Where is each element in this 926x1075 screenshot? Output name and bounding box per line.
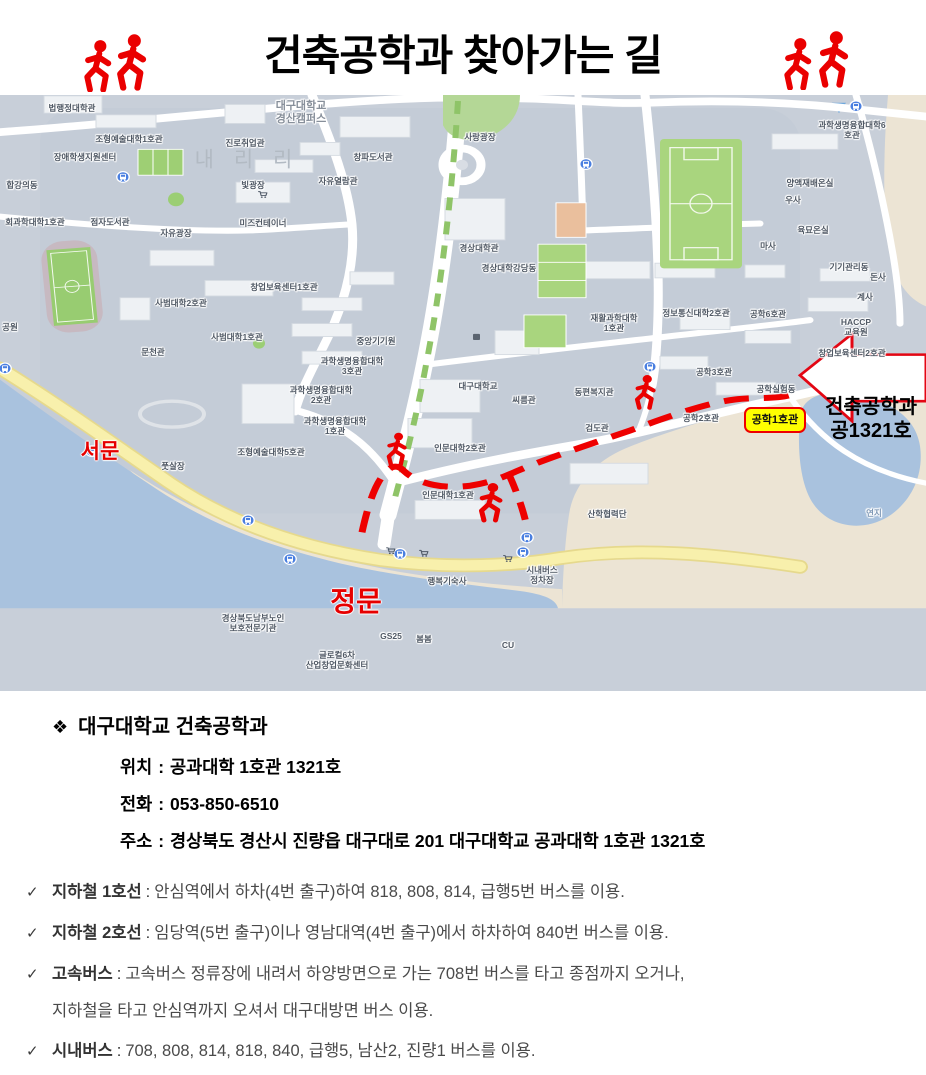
info-row-value: 053-850-6510 (170, 794, 279, 814)
colon-separator: : (142, 924, 155, 942)
check-icon: ✓ (26, 1040, 52, 1064)
transit-row-label: 지하철 1호선 (52, 883, 142, 901)
transit-row-label: 시내버스 (52, 1042, 113, 1060)
info-row-value: 공과대학 1호관 1321호 (170, 757, 341, 777)
main-gate-label: 정문 (330, 580, 382, 620)
check-icon: ✓ (26, 963, 52, 987)
check-icon: ✓ (26, 881, 52, 905)
bus-stop-icon (580, 159, 592, 170)
colon-separator: : (152, 757, 170, 777)
callout-text: 건축공학과 공1321호 (816, 395, 926, 443)
transit-row-text: 안심역에서 하차(4번 출구)하여 818, 808, 814, 급행5번 버스… (154, 883, 625, 901)
callout-line2: 공1321호 (816, 419, 926, 443)
colon-separator: : (113, 1042, 126, 1060)
check-icon: ✓ (26, 922, 52, 946)
map-base-graphic (0, 95, 926, 691)
info-row-label: 주소 (120, 831, 152, 851)
west-gate-label: 서문 (81, 435, 120, 465)
info-row: 전화:053-850-6510 (120, 786, 705, 823)
transit-row-text: 708, 808, 814, 818, 840, 급행5, 남산2, 진량1 버… (125, 1042, 535, 1060)
transit-row-continuation: 지하철을 타고 안심역까지 오셔서 대구대방면 버스 이용. (52, 999, 906, 1023)
transit-row: ✓시내버스:708, 808, 814, 818, 840, 급행5, 남산2,… (26, 1039, 906, 1064)
transit-row: ✓지하철 2호선:임당역(5번 출구)이나 영남대역(4번 출구)에서 하차하여… (26, 921, 906, 946)
bus-stop-icon (394, 549, 406, 560)
info-row-label: 위치 (120, 757, 152, 777)
runner-icon (808, 29, 860, 89)
colon-separator: : (152, 831, 170, 851)
info-rows: 위치:공과대학 1호관 1321호 전화:053-850-6510 주소:경상북… (120, 749, 705, 860)
bus-stop-icon (284, 554, 296, 565)
diamond-bullet-icon: ❖ (52, 717, 68, 737)
transit-row-text: 고속버스 정류장에 내려서 하양방면으로 가는 708번 버스를 타고 종점까지… (125, 965, 684, 983)
info-row: 위치:공과대학 1호관 1321호 (120, 749, 705, 786)
bus-stop-icon (117, 172, 129, 183)
transit-row-label: 고속버스 (52, 965, 113, 983)
transit-directions: ✓지하철 1호선:안심역에서 하차(4번 출구)하여 818, 808, 814… (26, 880, 906, 1075)
info-row-label: 전화 (120, 794, 152, 814)
runner-icon (106, 32, 158, 92)
building-badge: 공학1호관 (744, 407, 806, 433)
bus-stop-icon (644, 361, 656, 372)
bus-stop-icon (242, 515, 254, 526)
bus-stop-icon (517, 547, 529, 558)
colon-separator: : (152, 794, 170, 814)
callout-line1: 건축공학과 (816, 395, 926, 419)
transit-row-label: 지하철 2호선 (52, 924, 142, 942)
transit-row: ✓고속버스:고속버스 정류장에 내려서 하양방면으로 가는 708번 버스를 타… (26, 962, 906, 987)
info-heading-text: 대구대학교 건축공학과 (78, 716, 268, 738)
bus-stop-icon (850, 101, 862, 112)
campus-map: 법행정대학관조형예술대학1호관장애학생지원센터합강의동회과학대학1호관점자도서관… (0, 95, 926, 691)
colon-separator: : (113, 965, 126, 983)
transit-row-text: 임당역(5번 출구)이나 영남대역(4번 출구)에서 하차하여 840번 버스를… (154, 924, 668, 942)
campus-marker-icon (473, 334, 480, 340)
poster-page: 건축공학과 찾아가는 길 (0, 0, 926, 1075)
transit-row: ✓지하철 1호선:안심역에서 하차(4번 출구)하여 818, 808, 814… (26, 880, 906, 905)
info-row-value: 경상북도 경산시 진량읍 대구대로 201 대구대학교 공과대학 1호관 132… (170, 831, 705, 851)
info-heading: ❖대구대학교 건축공학과 (52, 710, 268, 739)
page-header: 건축공학과 찾아가는 길 (0, 0, 926, 95)
bus-stop-icon (0, 363, 11, 374)
info-row: 주소:경상북도 경산시 진량읍 대구대로 201 대구대학교 공과대학 1호관 … (120, 823, 705, 860)
bus-stop-icon (521, 532, 533, 543)
colon-separator: : (142, 883, 155, 901)
